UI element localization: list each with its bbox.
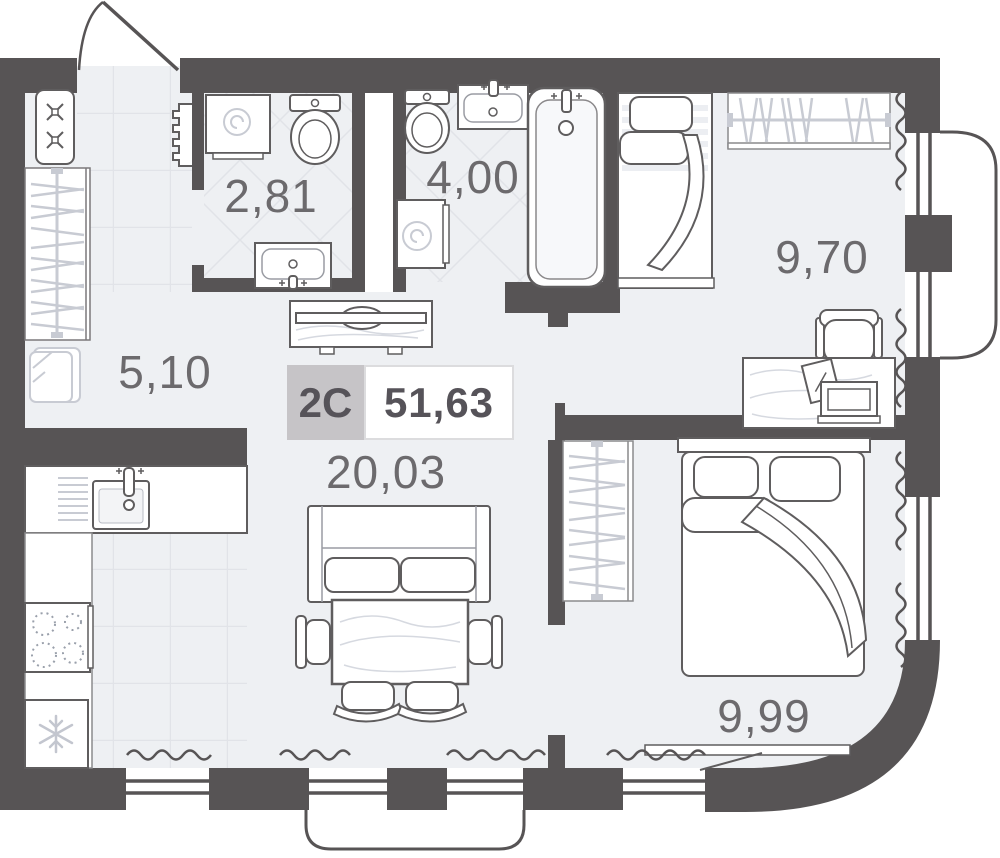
toilet-icon [290, 95, 340, 164]
window-bottom-2 [309, 768, 387, 810]
dining-chair-bottom-2 [398, 682, 466, 722]
room-area-label-bathroom-large: 4,00 [426, 150, 520, 204]
total-area-value: 51,63 [364, 365, 514, 440]
window-bottom-1 [126, 768, 209, 810]
sink-icon [255, 243, 331, 289]
room-area-label-living-kitchen: 20,03 [326, 445, 446, 499]
room-area-label-bathroom-small: 2,81 [224, 169, 318, 223]
dining-chair-right [468, 616, 502, 668]
tv-console-icon [290, 301, 432, 354]
floor-plan: 5,10 2,81 4,00 9,70 20,03 9,99 2C 51,63 [0, 0, 1000, 858]
bathtub-icon [528, 88, 605, 287]
room-area-label-bedroom-top: 9,70 [775, 230, 869, 284]
storage-box-icon [30, 348, 80, 402]
desk-chair-icon [816, 310, 882, 362]
washing-machine-icon-2 [397, 200, 449, 268]
electrical-panel-icon [36, 90, 74, 164]
hall-closet [25, 168, 90, 340]
entrance-door [79, 2, 178, 70]
toilet-icon-2 [405, 90, 449, 153]
sink-icon-2 [458, 80, 528, 129]
dining-chair-bottom-1 [334, 682, 402, 722]
room-area-label-hallway: 5,10 [118, 345, 212, 399]
apartment-type-label: 2C [287, 365, 364, 440]
desk-icon [743, 358, 895, 428]
area-badge: 2C 51,63 [287, 365, 514, 440]
sofa-icon [308, 506, 490, 602]
room-area-label-bedroom-bottom: 9,99 [717, 689, 811, 743]
window-bottom-3 [447, 768, 523, 810]
dining-chair-left [296, 616, 330, 668]
wardrobe-side-icon [563, 441, 633, 601]
single-bed-icon [618, 93, 714, 288]
fridge-icon [25, 700, 88, 768]
window-right-1 [905, 133, 940, 215]
window-right-3 [905, 497, 940, 640]
double-bed-icon [678, 438, 870, 676]
window-bottom-4 [623, 768, 705, 810]
washing-machine-icon [206, 95, 270, 159]
wardrobe-top-icon [727, 93, 891, 149]
window-right-2 [905, 272, 940, 357]
stove-icon [25, 603, 93, 672]
